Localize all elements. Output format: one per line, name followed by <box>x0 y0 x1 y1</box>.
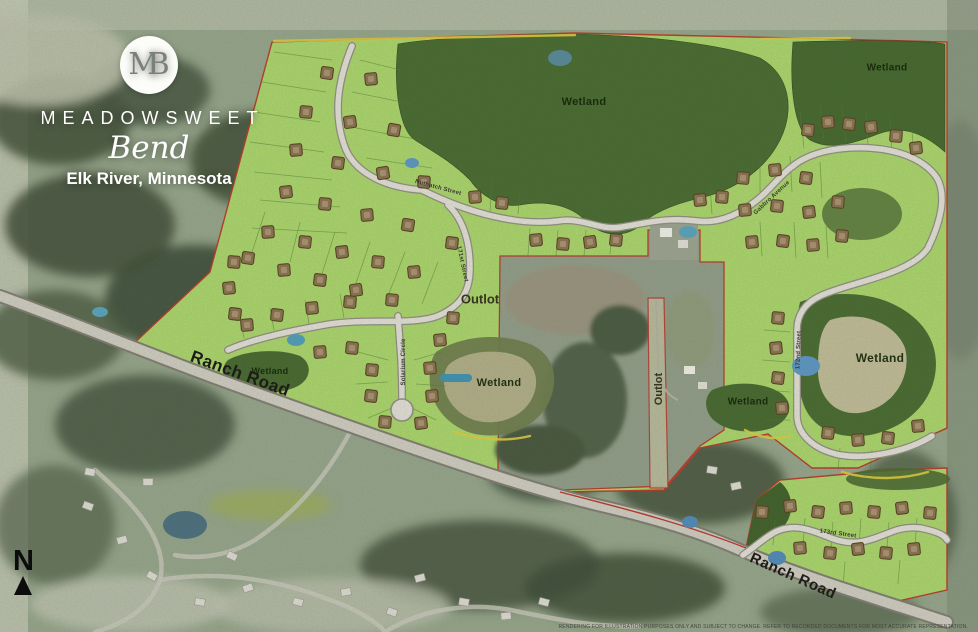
branding-block: MB MEADOWSWEET Bend Elk River, Minnesota <box>18 36 280 189</box>
site-plan-map: Wetland Wetland Wetland Wetland Wetland … <box>0 0 978 632</box>
development-name: MEADOWSWEET <box>18 108 280 129</box>
development-location: Elk River, Minnesota <box>18 169 280 189</box>
logo-monogram-disc: MB <box>120 36 178 94</box>
logo-monogram: MB <box>128 50 169 80</box>
development-name-script: Bend <box>18 132 280 165</box>
north-letter: N <box>13 548 34 574</box>
disclaimer-text: RENDERING FOR ILLUSTRATION PURPOSES ONLY… <box>559 624 969 630</box>
north-arrow-icon <box>14 576 32 595</box>
north-arrow: N <box>13 548 34 595</box>
